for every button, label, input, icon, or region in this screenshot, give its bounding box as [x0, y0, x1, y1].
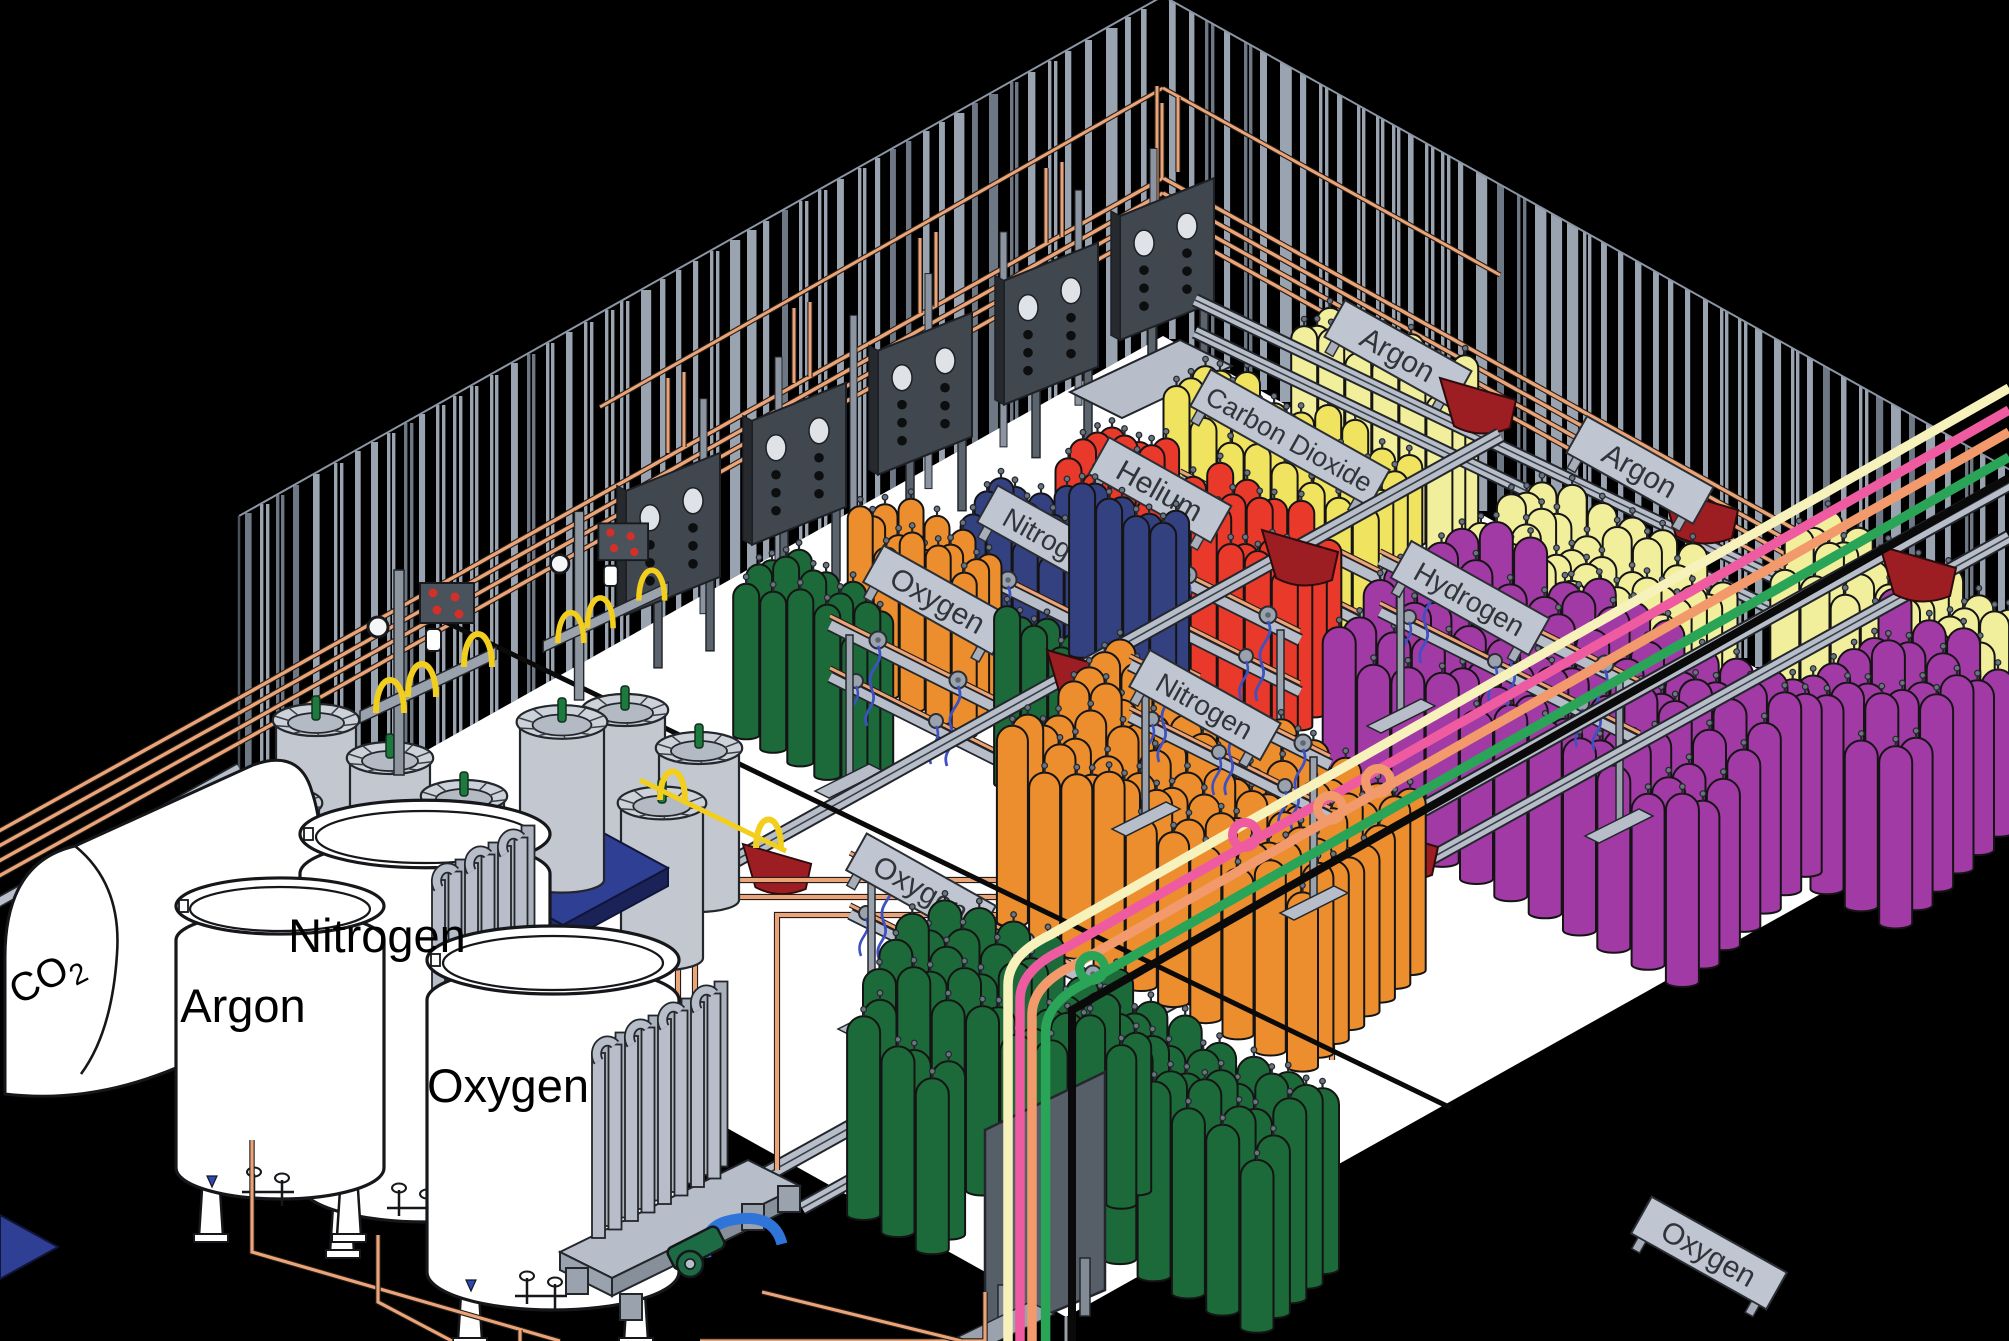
svg-text:Oxygen: Oxygen [427, 1059, 589, 1112]
svg-text:Argon: Argon [180, 979, 305, 1032]
svg-text:Nitrogen: Nitrogen [288, 909, 466, 962]
